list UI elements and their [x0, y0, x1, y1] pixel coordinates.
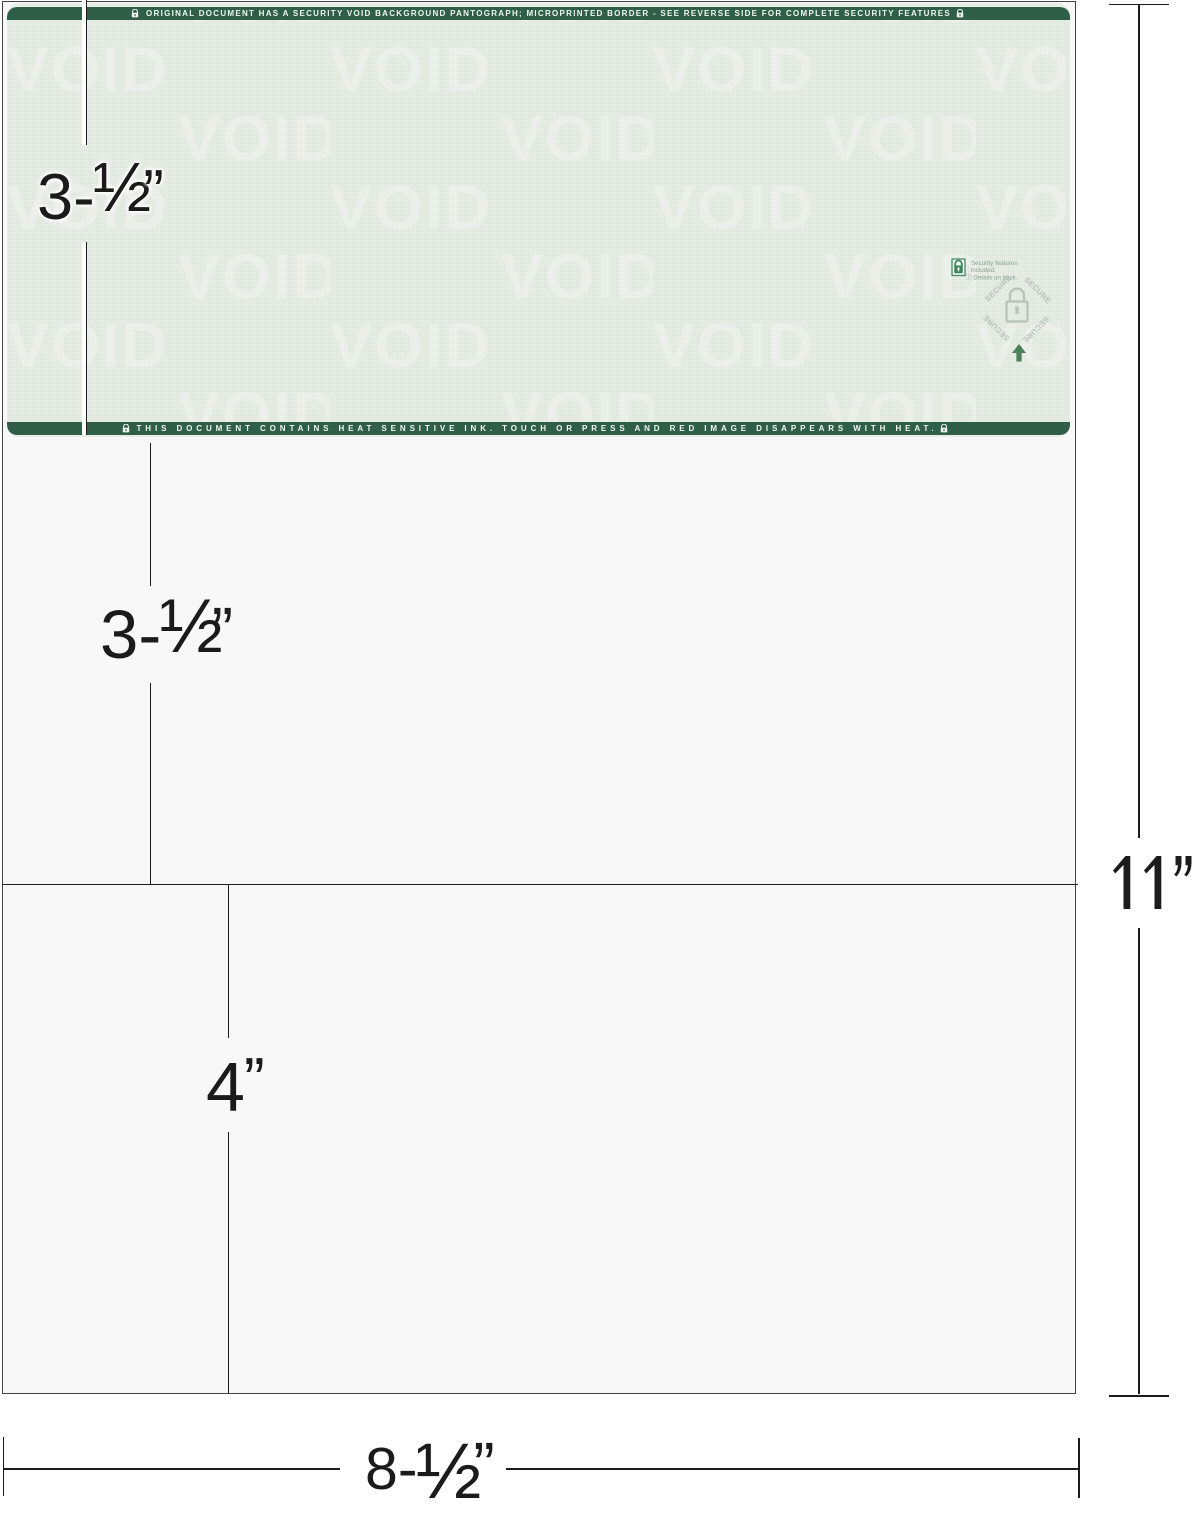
svg-text:Security features: Security features — [971, 260, 1017, 267]
svg-text:included.: included. — [971, 267, 996, 274]
svg-text:SECURE: SECURE — [1021, 315, 1051, 345]
